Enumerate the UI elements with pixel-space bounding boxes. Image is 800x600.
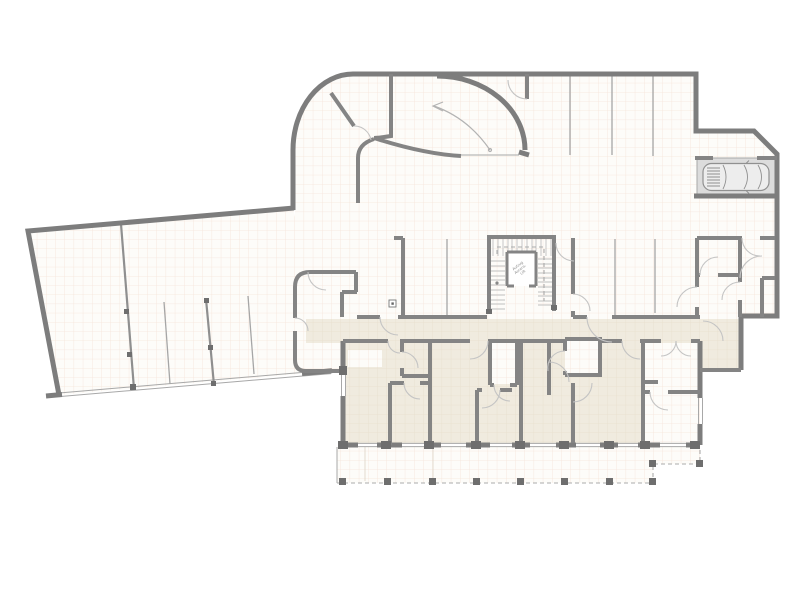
storage-room-floor xyxy=(490,343,517,384)
stair-wall-cap xyxy=(486,309,492,314)
stair-wall-cap xyxy=(551,305,557,310)
utility-nook-floor xyxy=(348,350,382,367)
wall-socket-icon xyxy=(389,300,396,307)
elevator: Aufzug Ascens. Lift xyxy=(507,252,536,286)
stair-walk-start-dot xyxy=(495,281,498,284)
floor-plan-page: Aufzug Ascens. Lift xyxy=(0,0,800,600)
car-icon xyxy=(703,161,769,194)
curb-end-cap xyxy=(519,152,529,155)
bathroom-floor xyxy=(565,341,600,374)
floor-plan-canvas: Aufzug Ascens. Lift xyxy=(0,0,800,600)
terrace-floor xyxy=(337,447,700,483)
garage-floor xyxy=(294,74,777,341)
parking-hall-floor xyxy=(28,209,333,395)
